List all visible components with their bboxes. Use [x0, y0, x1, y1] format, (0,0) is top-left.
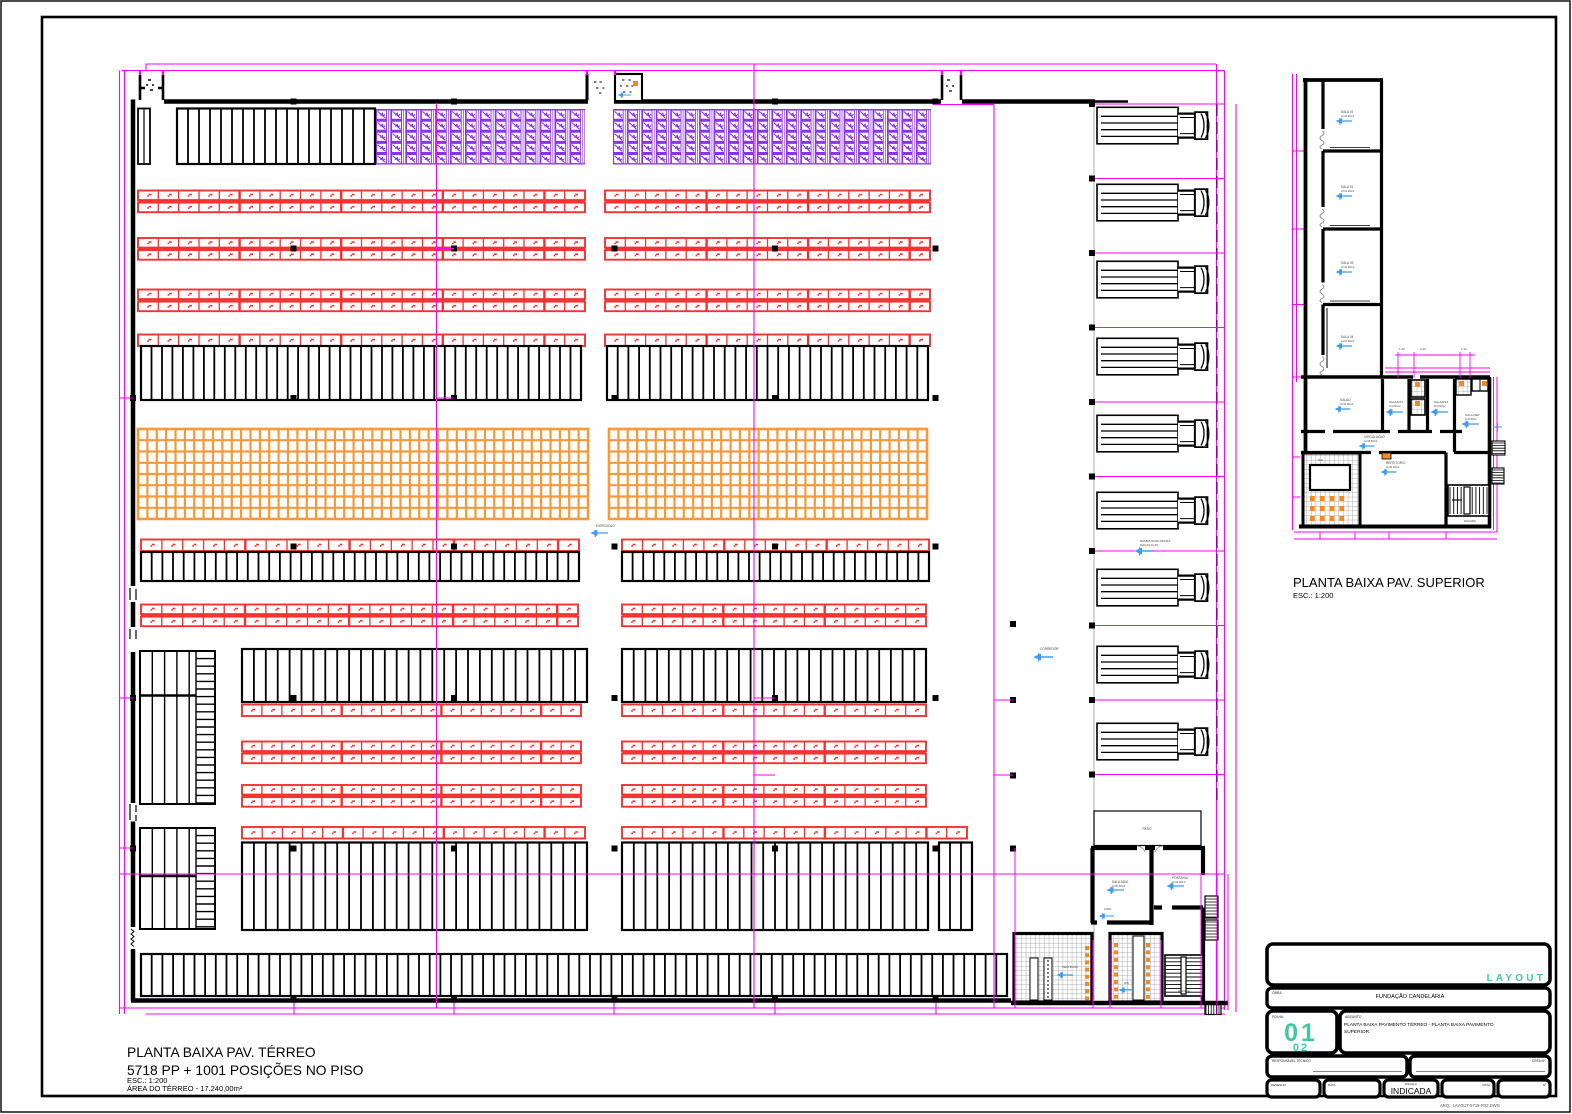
svg-text:PLANTA BAIXA PAV. TÉRREO: PLANTA BAIXA PAV. TÉRREO — [127, 1044, 316, 1060]
svg-text:CIRC.: CIRC. — [1104, 907, 1112, 911]
svg-text:ÁREA DO TÉRREO - 17.240,00m²: ÁREA DO TÉRREO - 17.240,00m² — [127, 1084, 243, 1093]
svg-text:ESC.: 1:200: ESC.: 1:200 — [1293, 591, 1333, 600]
svg-text:A=16,00m2: A=16,00m2 — [1172, 880, 1186, 884]
svg-text:A=41,00m2: A=41,00m2 — [1341, 339, 1355, 343]
svg-text:A=18,00m2: A=18,00m2 — [1364, 439, 1378, 443]
svg-text:SALA 01: SALA 01 — [1341, 110, 1354, 114]
svg-text:ESCADA: ESCADA — [1464, 519, 1476, 523]
svg-text:REFEITORIO: REFEITORIO — [1386, 461, 1406, 465]
svg-text:SALA EST.: SALA EST. — [1389, 400, 1404, 404]
svg-text:SALAO: SALAO — [1340, 398, 1351, 402]
svg-text:CORREDOR: CORREDOR — [1040, 647, 1059, 651]
svg-text:SALA 03: SALA 03 — [1341, 261, 1354, 265]
svg-text:02: 02 — [1293, 1042, 1309, 1054]
svg-text:CIRCULACAO: CIRCULACAO — [1364, 435, 1385, 439]
svg-text:ARQ.: LAYOUT-5718-R02.DWG: ARQ.: LAYOUT-5718-R02.DWG — [1440, 1103, 1500, 1108]
svg-text:LAYOUT: LAYOUT — [1487, 973, 1546, 984]
svg-text:A=32,00m2: A=32,00m2 — [1340, 402, 1354, 406]
svg-text:SALA 04: SALA 04 — [1341, 335, 1354, 339]
svg-text:OBRA: OBRA — [1272, 991, 1282, 995]
svg-text:A=41,00m2: A=41,00m2 — [1341, 189, 1355, 193]
svg-text:VESTIARIO: VESTIARIO — [1062, 965, 1079, 969]
svg-text:SALA DEP.: SALA DEP. — [1465, 413, 1480, 417]
svg-text:ASSUNTO: ASSUNTO — [1345, 1015, 1362, 1019]
svg-text:WC: WC — [1318, 458, 1324, 462]
svg-text:A=9,00m2: A=9,00m2 — [1434, 405, 1446, 408]
svg-text:A=9,00m2: A=9,00m2 — [1389, 405, 1401, 408]
svg-text:SALA 02: SALA 02 — [1341, 185, 1354, 189]
svg-text:A=41,00m2: A=41,00m2 — [1341, 265, 1355, 269]
svg-text:A=20,00m2: A=20,00m2 — [1112, 884, 1126, 888]
svg-text:DESENHO: DESENHO — [1271, 1083, 1287, 1087]
svg-text:SALA ADM.: SALA ADM. — [1112, 880, 1129, 884]
svg-text:PATIO: PATIO — [1142, 827, 1152, 831]
svg-text:PLANTA BAIXA PAVIMENTO TÉRREO: PLANTA BAIXA PAVIMENTO TÉRREO - PLANTA B… — [1344, 1021, 1494, 1028]
svg-text:DATA: DATA — [1482, 1083, 1490, 1087]
svg-text:WC: WC — [1124, 981, 1130, 985]
svg-text:1.20: 1.20 — [1399, 347, 1405, 351]
svg-text:INDICADA: INDICADA — [1391, 1086, 1432, 1096]
svg-text:SALA EST.: SALA EST. — [1434, 400, 1449, 404]
svg-text:CREA Nº: CREA Nº — [1532, 1059, 1546, 1063]
svg-text:RESPONSÁVEL TÉCNICO: RESPONSÁVEL TÉCNICO — [1272, 1058, 1311, 1063]
svg-text:FOLHA: FOLHA — [1272, 1015, 1284, 1019]
svg-text:SUPERIOR.: SUPERIOR. — [1344, 1029, 1370, 1035]
svg-text:PORTARIA: PORTARIA — [1172, 876, 1189, 880]
svg-text:1.10: 1.10 — [1461, 347, 1467, 351]
svg-text:DATA: DATA — [1328, 1083, 1336, 1087]
svg-text:FUNDAÇÃO CANDELÁRIA: FUNDAÇÃO CANDELÁRIA — [1376, 993, 1445, 1000]
svg-text:PLANTA BAIXA PAV. SUPERIOR: PLANTA BAIXA PAV. SUPERIOR — [1293, 575, 1485, 590]
svg-text:A=41,00m2: A=41,00m2 — [1341, 114, 1355, 118]
svg-text:A=8,00m2: A=8,00m2 — [1465, 418, 1477, 421]
svg-text:DOCAS 01-09: DOCAS 01-09 — [1140, 543, 1158, 547]
svg-text:EXPEDICAO: EXPEDICAO — [596, 524, 615, 528]
svg-text:2.10: 2.10 — [1420, 347, 1426, 351]
svg-text:ESCADA: ESCADA — [1178, 989, 1190, 993]
svg-text:A=30,00m2: A=30,00m2 — [1386, 465, 1400, 469]
